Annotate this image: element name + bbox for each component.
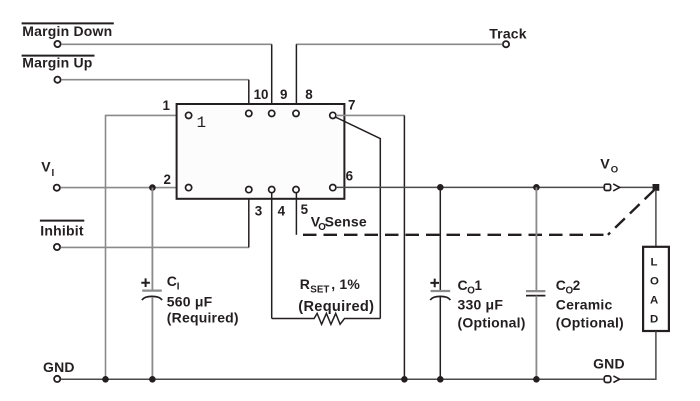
svg-text:1: 1	[163, 98, 171, 113]
svg-text:9: 9	[280, 87, 287, 102]
svg-text:Margin Down: Margin Down	[22, 23, 112, 39]
svg-text:8: 8	[305, 87, 313, 102]
svg-text:GND: GND	[43, 359, 75, 375]
svg-text:(Optional): (Optional)	[556, 315, 624, 331]
svg-text:I: I	[52, 168, 55, 179]
svg-text:R: R	[300, 276, 310, 292]
svg-text:Inhibit: Inhibit	[40, 222, 84, 238]
svg-text:2: 2	[573, 278, 580, 293]
svg-text:D: D	[650, 313, 658, 325]
svg-text:GND: GND	[593, 356, 625, 372]
svg-text:A: A	[650, 295, 658, 307]
svg-text:Margin Up: Margin Up	[22, 55, 92, 71]
svg-text:I: I	[177, 282, 180, 293]
svg-text:2: 2	[164, 172, 171, 187]
svg-text:C: C	[167, 273, 177, 289]
svg-text:O: O	[650, 275, 659, 287]
svg-text:(Required): (Required)	[167, 310, 239, 326]
svg-text:O: O	[611, 165, 618, 176]
svg-text:(Optional): (Optional)	[458, 315, 526, 331]
svg-text:(Required): (Required)	[298, 299, 374, 315]
svg-text:7: 7	[348, 98, 355, 113]
svg-text:Sense: Sense	[325, 213, 367, 229]
svg-text:V: V	[600, 156, 610, 172]
svg-text:560 μF: 560 μF	[167, 293, 213, 309]
svg-text:4: 4	[278, 203, 286, 218]
svg-text:L: L	[651, 257, 658, 269]
svg-text:1: 1	[197, 114, 207, 132]
svg-text:5: 5	[301, 202, 309, 217]
svg-text:V: V	[41, 159, 51, 175]
svg-text:Track: Track	[489, 26, 527, 42]
svg-text:330 μF: 330 μF	[458, 296, 504, 312]
svg-text:3: 3	[255, 203, 262, 218]
svg-text:SET: SET	[310, 284, 329, 295]
svg-text:1: 1	[475, 278, 483, 293]
svg-text:Ceramic: Ceramic	[556, 296, 613, 312]
svg-text:10: 10	[254, 87, 269, 102]
svg-text:, 1%: , 1%	[331, 276, 360, 292]
svg-text:6: 6	[346, 169, 353, 184]
